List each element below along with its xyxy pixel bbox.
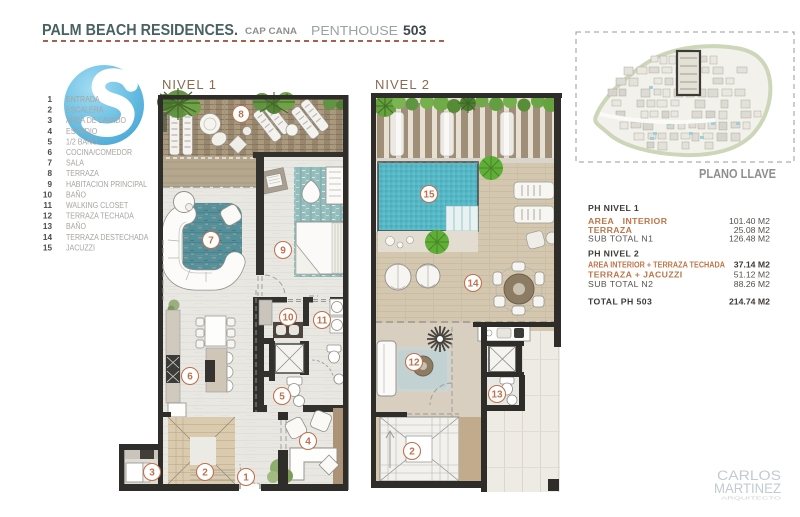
svg-text:10: 10 (43, 190, 53, 199)
svg-text:JACUZZI: JACUZZI (66, 243, 95, 253)
svg-text:503: 503 (403, 22, 427, 38)
svg-text:5: 5 (47, 137, 52, 146)
svg-text:14: 14 (467, 279, 479, 290)
svg-text:SALA: SALA (66, 158, 85, 168)
svg-text:8: 8 (47, 169, 52, 178)
svg-text:TOTAL PH 503: TOTAL PH 503 (588, 297, 652, 307)
svg-text:11: 11 (43, 201, 52, 210)
svg-text:214.74 M2: 214.74 M2 (729, 297, 770, 307)
svg-text:1: 1 (243, 473, 249, 484)
svg-text:12: 12 (408, 358, 420, 369)
svg-text:CAP CANA: CAP CANA (245, 26, 298, 36)
svg-text:ENTRADA: ENTRADA (66, 94, 100, 104)
svg-text:8: 8 (238, 110, 244, 121)
svg-text:1/2 BAÑO: 1/2 BAÑO (66, 137, 98, 147)
svg-text:4: 4 (47, 127, 52, 136)
svg-text:13: 13 (43, 222, 53, 231)
svg-text:PH NIVEL 2: PH NIVEL 2 (588, 249, 639, 259)
svg-text:2: 2 (409, 447, 415, 458)
svg-text:2: 2 (202, 468, 208, 479)
svg-text:15: 15 (423, 190, 435, 201)
svg-text:10: 10 (282, 313, 294, 324)
svg-text:12: 12 (43, 212, 53, 221)
svg-text:126.48 M2: 126.48 M2 (729, 234, 770, 244)
svg-text:TERRAZA + JACUZZI: TERRAZA + JACUZZI (588, 270, 683, 280)
svg-text:AREA DE LAVADO: AREA DE LAVADO (66, 116, 126, 126)
svg-text:SUB TOTAL N2: SUB TOTAL N2 (588, 279, 653, 289)
svg-text:NIVEL 2: NIVEL 2 (375, 77, 430, 92)
svg-text:BAÑO: BAÑO (66, 222, 86, 232)
svg-text:HABITACION PRINCIPAL: HABITACION PRINCIPAL (66, 179, 147, 189)
svg-text:3: 3 (47, 116, 52, 125)
svg-text:3: 3 (149, 468, 155, 479)
svg-text:88.26 M2: 88.26 M2 (734, 279, 770, 289)
svg-text:AREA INTERIOR + TERRAZA TECHAD: AREA INTERIOR + TERRAZA TECHADA (588, 260, 726, 270)
svg-text:6: 6 (47, 148, 52, 157)
svg-text:NIVEL 1: NIVEL 1 (162, 77, 217, 92)
svg-text:9: 9 (47, 180, 52, 189)
svg-text:11: 11 (317, 316, 328, 327)
svg-text:37.14 M2: 37.14 M2 (734, 260, 770, 270)
svg-text:TERRAZA: TERRAZA (66, 169, 100, 179)
svg-text:9: 9 (280, 246, 286, 257)
svg-text:14: 14 (43, 233, 53, 242)
svg-text:7: 7 (47, 159, 52, 168)
svg-text:4: 4 (305, 437, 311, 448)
svg-text:PALM BEACH RESIDENCES.: PALM BEACH RESIDENCES. (42, 22, 238, 39)
svg-text:PENTHOUSE: PENTHOUSE (311, 23, 398, 38)
svg-text:BAÑO: BAÑO (66, 190, 86, 200)
svg-text:7: 7 (208, 236, 214, 247)
svg-text:15: 15 (43, 243, 53, 252)
svg-text:6: 6 (187, 372, 193, 383)
svg-text:ARQUITECTO: ARQUITECTO (721, 496, 782, 501)
svg-text:13: 13 (491, 390, 503, 401)
svg-text:MARTINEZ: MARTINEZ (714, 481, 781, 496)
svg-text:PLANO LLAVE: PLANO LLAVE (699, 167, 776, 181)
svg-text:51.12 M2: 51.12 M2 (734, 270, 770, 280)
svg-text:5: 5 (279, 392, 285, 403)
svg-text:TERRAZA DESTECHADA: TERRAZA DESTECHADA (66, 232, 149, 242)
svg-text:WALKING CLOSET: WALKING CLOSET (66, 200, 129, 210)
svg-text:ESTUDIO: ESTUDIO (66, 126, 97, 136)
svg-text:COCINA/COMEDOR: COCINA/COMEDOR (66, 147, 132, 157)
svg-text:2: 2 (47, 106, 52, 115)
svg-text:1: 1 (47, 95, 52, 104)
svg-text:ESCALERA: ESCALERA (66, 105, 104, 115)
svg-text:PH NIVEL 1: PH NIVEL 1 (588, 203, 639, 213)
svg-text:SUB TOTAL N1: SUB TOTAL N1 (588, 234, 653, 244)
svg-text:TERRAZA TECHADA: TERRAZA TECHADA (66, 211, 135, 221)
